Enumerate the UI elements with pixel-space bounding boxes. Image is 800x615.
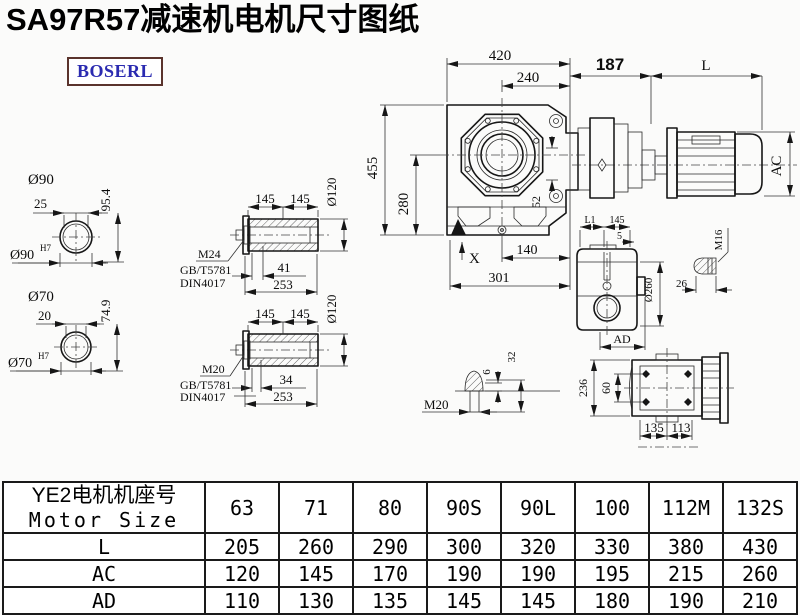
dim-front-x-mark: X: [469, 251, 480, 267]
dim-side-len: 145: [610, 215, 625, 226]
size-col-header: 90L: [501, 482, 575, 533]
view-hollow-shaft-m20: 145 145 Ø120 M20 GB/T5781 DIN4017 34 253: [180, 295, 348, 407]
value-cell: 195: [575, 560, 649, 587]
dim-m20-len-b: 145: [290, 306, 310, 321]
dim-shaft90-bore-tol: H7: [40, 243, 51, 253]
value-cell: 145: [279, 560, 353, 587]
dim-front-foot-b: 301: [489, 271, 510, 286]
value-cell: 190: [501, 560, 575, 587]
dim-m20-len-a: 145: [255, 306, 275, 321]
dim-shaft90-width: 25: [34, 196, 47, 211]
value-cell: 145: [501, 587, 575, 614]
value-cell: 170: [353, 560, 427, 587]
motor-size-table: YE2电机机座号 Motor Size 63 71 80 90S 90L 100…: [2, 481, 798, 615]
dim-m20-bolt-tip: 6: [481, 369, 493, 375]
value-cell: 180: [575, 587, 649, 614]
value-cell: 120: [205, 560, 279, 587]
dim-m24-std1: GB/T5781: [180, 263, 231, 277]
value-cell: 190: [649, 587, 723, 614]
view-motor: 187 L AC: [570, 55, 797, 198]
row-label: AC: [3, 560, 205, 587]
dim-front-width: 420: [489, 48, 512, 64]
dim-m20-thread: M20: [202, 362, 225, 376]
dim-m20-bolt-thread: M20: [424, 397, 449, 412]
value-cell: 260: [723, 560, 797, 587]
value-cell: 205: [205, 533, 279, 560]
dim-motor-adapter: 187: [596, 55, 624, 74]
size-col-header: 132S: [723, 482, 797, 533]
dim-m24-total: 253: [273, 277, 293, 292]
dim-rear-bolt-span: 60: [599, 382, 613, 394]
value-cell: 430: [723, 533, 797, 560]
dim-front-foot-a: 140: [517, 243, 538, 258]
dim-shaft70-bore: Ø70: [8, 356, 32, 371]
dim-m20-dia: Ø120: [324, 295, 339, 324]
row-label: L: [3, 533, 205, 560]
dim-motor-length: L: [701, 58, 710, 74]
value-cell: 380: [649, 533, 723, 560]
dim-front-offset: 52: [529, 196, 543, 208]
size-col-header: 90S: [427, 482, 501, 533]
row-label: AD: [3, 587, 205, 614]
dim-rear-foot-b: 113: [671, 420, 690, 435]
table-header-cn: YE2电机机座号: [4, 483, 204, 508]
value-cell: 290: [353, 533, 427, 560]
view-rear: 236 60 135 113: [576, 348, 734, 447]
dim-m24-len-b: 145: [290, 191, 310, 206]
detail-bolt-m20: M20 6 32: [422, 352, 560, 413]
value-cell: 320: [501, 533, 575, 560]
dim-m20-depth: 34: [280, 372, 294, 387]
value-cell: 135: [353, 587, 427, 614]
size-col-header: 63: [205, 482, 279, 533]
view-shaft-90: Ø90 25 95.4 Ø90 H7: [10, 172, 124, 267]
value-cell: 210: [723, 587, 797, 614]
dim-shaft70-bore-tol: H7: [38, 351, 49, 361]
dim-rear-height: 236: [576, 379, 590, 397]
dim-side-ad: AD: [613, 332, 631, 346]
technical-drawing: Ø90 25 95.4 Ø90 H7 Ø70 20 74.9 Ø70 H7: [0, 0, 800, 478]
view-side: L1 145 5 Ø260 AD: [577, 215, 664, 350]
dim-rear-foot-a: 135: [644, 420, 664, 435]
size-col-header: 71: [279, 482, 353, 533]
view-hollow-shaft-m24: 145 145 Ø120 M24 GB/T5781 DIN4017 41 253: [180, 178, 348, 295]
dim-side-l1: L1: [584, 215, 595, 226]
table-header-row: YE2电机机座号 Motor Size 63 71 80 90S 90L 100…: [3, 482, 797, 533]
value-cell: 330: [575, 533, 649, 560]
detail-bolt-m16: M16 26: [676, 228, 732, 293]
dim-m16-len: 26: [676, 278, 688, 290]
dim-shaft90-height: 95.4: [98, 188, 113, 211]
value-cell: 145: [427, 587, 501, 614]
dim-m20-bolt-len: 32: [506, 352, 518, 363]
dim-m24-depth: 41: [278, 260, 291, 275]
dim-m24-len-a: 145: [255, 191, 275, 206]
value-cell: 260: [279, 533, 353, 560]
view-front: 420 240 455 280 52 X 140 301: [365, 48, 585, 290]
dim-m24-std2: DIN4017: [180, 276, 225, 290]
dim-m24-thread: M24: [198, 247, 221, 261]
dim-shaft70-name: Ø70: [28, 289, 54, 305]
dim-front-center-height: 280: [396, 193, 412, 216]
value-cell: 215: [649, 560, 723, 587]
table-row-AC: AC 120 145 170 190 190 195 215 260: [3, 560, 797, 587]
dim-shaft90-name: Ø90: [28, 172, 54, 188]
value-cell: 190: [427, 560, 501, 587]
dim-shaft70-height: 74.9: [98, 300, 113, 323]
dim-m16-thread: M16: [713, 229, 725, 250]
value-cell: 300: [427, 533, 501, 560]
dim-shaft90-bore: Ø90: [10, 248, 34, 263]
dim-side-gap: 5: [617, 231, 622, 242]
dim-m24-dia: Ø120: [324, 178, 339, 207]
size-col-header: 100: [575, 482, 649, 533]
size-col-header: 80: [353, 482, 427, 533]
dim-front-height: 455: [365, 157, 381, 180]
view-shaft-70: Ø70 20 74.9 Ø70 H7: [8, 289, 123, 375]
size-col-header: 112M: [649, 482, 723, 533]
table-row-AD: AD 110 130 135 145 145 180 190 210: [3, 587, 797, 614]
dim-m20-std2: DIN4017: [180, 390, 225, 404]
dim-side-flange-dia: Ø260: [643, 277, 655, 302]
value-cell: 130: [279, 587, 353, 614]
dim-motor-diameter: AC: [769, 156, 785, 177]
table-header-title-cell: YE2电机机座号 Motor Size: [3, 482, 205, 533]
dim-m20-total: 253: [273, 389, 293, 404]
table-row-L: L 205 260 290 300 320 330 380 430: [3, 533, 797, 560]
value-cell: 110: [205, 587, 279, 614]
dim-shaft70-width: 20: [38, 308, 51, 323]
dim-front-half-width: 240: [517, 70, 540, 86]
table-header-en: Motor Size: [4, 508, 204, 532]
